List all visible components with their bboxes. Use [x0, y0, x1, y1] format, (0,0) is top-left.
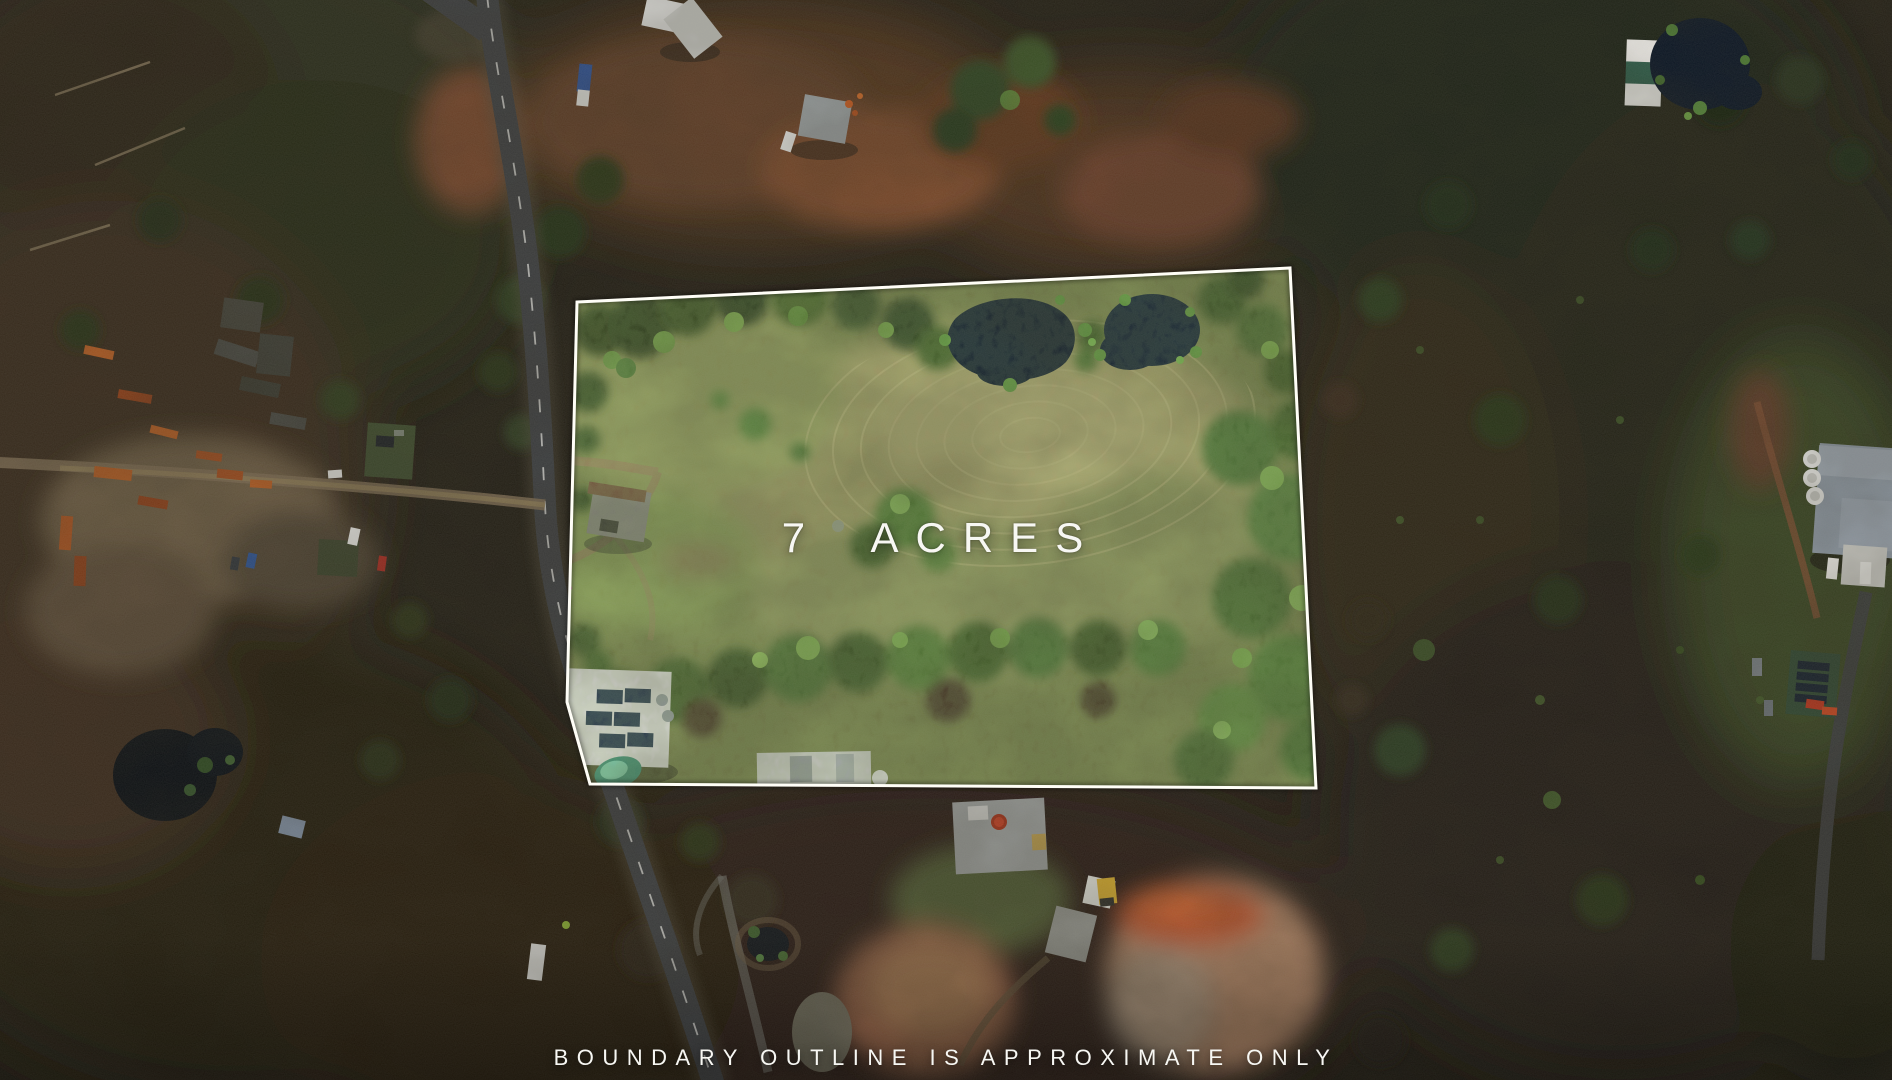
aerial-photo: 7 ACRES BOUNDARY OUTLINE IS APPROXIMATE …	[0, 0, 1892, 1080]
boundary-disclaimer: BOUNDARY OUTLINE IS APPROXIMATE ONLY	[0, 1045, 1892, 1071]
area-label: 7 ACRES	[782, 514, 1100, 562]
